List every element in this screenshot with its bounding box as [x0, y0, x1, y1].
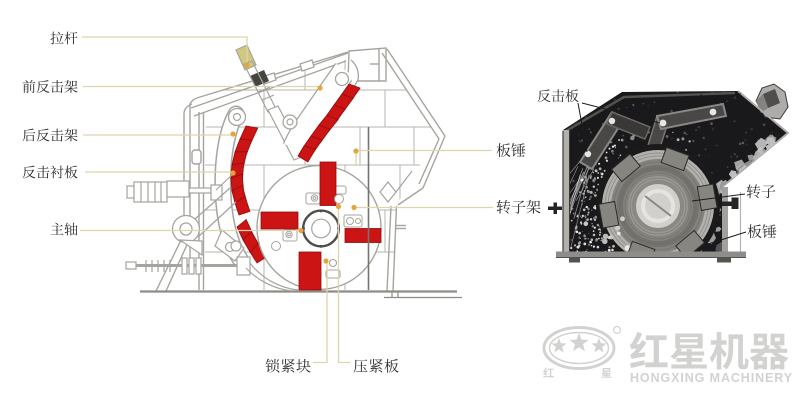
svg-text:HONGXING MACHINERY: HONGXING MACHINERY	[630, 371, 793, 385]
